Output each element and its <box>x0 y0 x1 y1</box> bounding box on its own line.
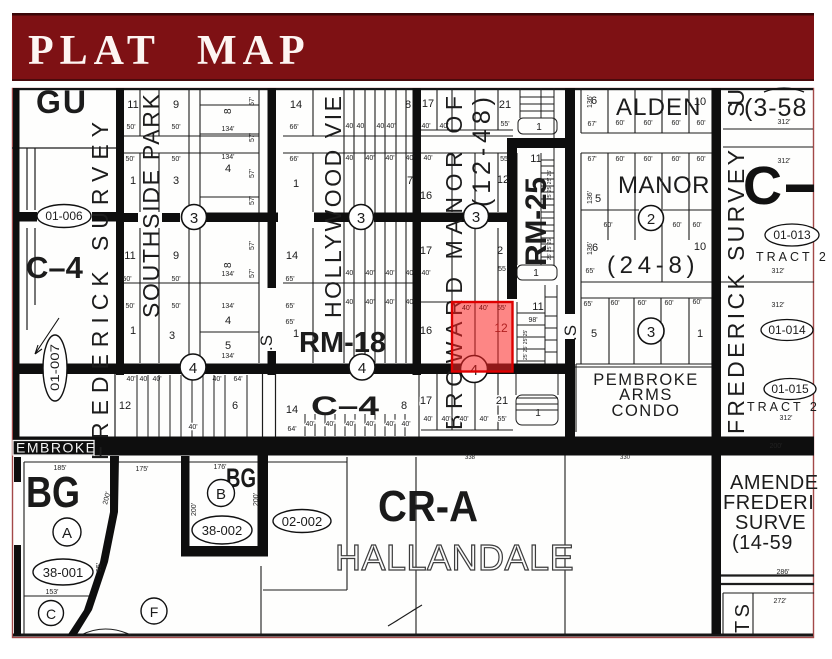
svg-text:9: 9 <box>173 250 179 262</box>
svg-text:60': 60' <box>664 300 673 307</box>
svg-text:8: 8 <box>223 262 234 268</box>
svg-text:6: 6 <box>232 400 238 412</box>
svg-text:BG: BG <box>26 468 80 517</box>
svg-text:55: 55 <box>500 156 508 163</box>
svg-text:57': 57' <box>249 133 256 142</box>
svg-text:50': 50' <box>171 276 180 283</box>
svg-text:65': 65' <box>585 268 594 275</box>
svg-text:(14-59: (14-59 <box>732 532 793 554</box>
svg-text:2: 2 <box>497 245 503 257</box>
svg-text:C–4: C–4 <box>26 250 84 285</box>
svg-text:1: 1 <box>533 268 539 279</box>
svg-text:60': 60' <box>672 222 681 229</box>
svg-text:312': 312' <box>777 158 790 165</box>
svg-text:CR-A: CR-A <box>378 482 478 531</box>
svg-text:25' 25' 25' 25': 25' 25' 25' 25' <box>547 170 553 200</box>
svg-text:01-013: 01-013 <box>773 228 811 242</box>
svg-text:55: 55 <box>498 266 506 273</box>
svg-text:4: 4 <box>225 163 231 175</box>
svg-text:312': 312' <box>771 268 784 275</box>
svg-text:200': 200' <box>769 443 782 450</box>
svg-text:8: 8 <box>401 400 407 412</box>
svg-text:60': 60' <box>692 299 701 306</box>
svg-text:40': 40' <box>405 270 414 277</box>
svg-text:11: 11 <box>124 250 135 262</box>
svg-text:40': 40' <box>421 123 430 130</box>
svg-text:60': 60' <box>696 120 705 127</box>
svg-text:HALLANDALE: HALLANDALE <box>335 537 574 578</box>
svg-text:1: 1 <box>293 328 299 340</box>
svg-text:40': 40' <box>385 270 394 277</box>
svg-text:50': 50' <box>125 303 134 310</box>
svg-text:50': 50' <box>171 124 180 131</box>
svg-text:17: 17 <box>422 98 434 110</box>
svg-text:134': 134' <box>221 303 234 310</box>
svg-text:175': 175' <box>135 466 148 473</box>
svg-text:65': 65' <box>285 303 294 310</box>
svg-text:TRACT 2: TRACT 2 <box>756 250 829 264</box>
svg-text:312': 312' <box>771 302 784 309</box>
svg-text:134': 134' <box>221 353 234 360</box>
svg-text:5: 5 <box>591 328 597 340</box>
svg-text:10: 10 <box>694 96 706 108</box>
svg-text:(12-48): (12-48) <box>468 97 496 207</box>
svg-text:16: 16 <box>420 325 432 337</box>
svg-text:8: 8 <box>405 99 411 111</box>
svg-text:7: 7 <box>407 175 413 187</box>
svg-text:40': 40' <box>441 416 450 423</box>
svg-text:40': 40' <box>305 421 314 428</box>
svg-text:40': 40' <box>376 123 385 130</box>
svg-text:40': 40' <box>345 123 354 130</box>
svg-text:312': 312' <box>779 415 792 422</box>
svg-text:136': 136' <box>587 95 594 108</box>
svg-text:.S: .S <box>257 335 276 351</box>
svg-text:57': 57' <box>249 196 256 205</box>
svg-text:60': 60' <box>696 156 705 163</box>
svg-text:38-001: 38-001 <box>43 565 83 580</box>
svg-text:67': 67' <box>587 121 596 128</box>
svg-text:40': 40' <box>365 299 374 306</box>
svg-text:40': 40' <box>423 416 432 423</box>
svg-text:200': 200' <box>253 493 260 506</box>
svg-text:8: 8 <box>223 108 234 114</box>
svg-text:PLAT: PLAT <box>28 28 161 74</box>
svg-text:1: 1 <box>536 122 542 133</box>
svg-text:176': 176' <box>213 464 226 471</box>
svg-text:3: 3 <box>169 330 175 342</box>
svg-text:338: 338 <box>465 455 476 461</box>
svg-text:02-002: 02-002 <box>282 514 322 529</box>
svg-text:40': 40' <box>385 155 394 162</box>
svg-text:57': 57' <box>249 241 256 250</box>
svg-text:60': 60' <box>671 120 680 127</box>
svg-text:40': 40' <box>188 424 197 431</box>
svg-text:60': 60' <box>692 222 701 229</box>
svg-text:(24-8): (24-8) <box>607 252 696 279</box>
svg-text:01-015: 01-015 <box>771 382 809 396</box>
svg-text:40': 40' <box>325 421 334 428</box>
svg-text:40': 40' <box>365 155 374 162</box>
svg-text:286': 286' <box>776 569 789 576</box>
svg-text:4: 4 <box>358 360 366 377</box>
svg-text:(3-58: (3-58 <box>744 94 807 122</box>
svg-text:60': 60' <box>610 300 619 307</box>
svg-text:2: 2 <box>647 211 655 228</box>
svg-text:134': 134' <box>221 126 234 133</box>
svg-text:330: 330 <box>620 455 631 461</box>
svg-text:65': 65' <box>285 319 294 326</box>
svg-text:11: 11 <box>532 301 543 313</box>
svg-text:9: 9 <box>173 99 179 111</box>
svg-text:MAP: MAP <box>197 28 311 74</box>
svg-text:TRACT 2: TRACT 2 <box>747 400 820 414</box>
svg-text:55': 55' <box>497 305 506 312</box>
svg-text:40': 40' <box>365 421 374 428</box>
svg-text:3: 3 <box>173 175 179 187</box>
svg-text:1: 1 <box>293 178 299 190</box>
svg-text:272': 272' <box>773 598 786 605</box>
svg-text:40': 40' <box>345 155 354 162</box>
svg-text:C–4: C–4 <box>311 391 379 421</box>
svg-text:A: A <box>62 525 72 542</box>
svg-text:1: 1 <box>130 175 136 187</box>
svg-text:25' 25' 25': 25' 25' 25' <box>547 238 553 260</box>
svg-text:16: 16 <box>420 190 432 202</box>
svg-text:50': 50' <box>171 303 180 310</box>
svg-text:40': 40' <box>152 376 161 383</box>
svg-text:66': 66' <box>289 124 298 131</box>
svg-text:312': 312' <box>777 119 790 126</box>
svg-text:136': 136' <box>587 242 594 255</box>
svg-text:12: 12 <box>494 321 508 335</box>
svg-text:3: 3 <box>357 210 365 227</box>
svg-text:17: 17 <box>420 395 432 407</box>
svg-text:HOLLYWOOD VIE: HOLLYWOOD VIE <box>320 96 346 318</box>
svg-text:40': 40' <box>405 299 414 306</box>
svg-text:4: 4 <box>225 315 231 327</box>
svg-text:5: 5 <box>225 340 231 352</box>
svg-text:1: 1 <box>697 328 703 340</box>
svg-text:153': 153' <box>45 589 58 596</box>
svg-text:98': 98' <box>528 317 537 324</box>
svg-text:3: 3 <box>190 210 198 227</box>
svg-text:01-007: 01-007 <box>50 344 62 391</box>
svg-text:12: 12 <box>119 400 131 412</box>
svg-text:40': 40' <box>356 123 365 130</box>
svg-text:14: 14 <box>290 99 302 111</box>
svg-text:50': 50' <box>125 156 134 163</box>
svg-text:65': 65' <box>285 276 294 283</box>
svg-text:66': 66' <box>289 156 298 163</box>
svg-text:C: C <box>46 606 56 622</box>
svg-text:1: 1 <box>535 408 541 419</box>
svg-text:40': 40' <box>139 376 148 383</box>
svg-text:SU: SU <box>723 89 749 117</box>
svg-text:38-002: 38-002 <box>202 523 242 538</box>
svg-text:21: 21 <box>496 395 508 407</box>
svg-text:64': 64' <box>287 426 296 433</box>
svg-text:60': 60' <box>615 120 624 127</box>
svg-text:14: 14 <box>286 250 298 262</box>
svg-text:95': 95' <box>96 563 103 572</box>
svg-text:40': 40' <box>385 421 394 428</box>
svg-text:EMBROKE: EMBROKE <box>16 440 97 456</box>
svg-text:40': 40' <box>345 299 354 306</box>
svg-text:10: 10 <box>694 241 706 253</box>
svg-text:40': 40' <box>479 305 488 312</box>
svg-text:AMENDE: AMENDE <box>730 472 819 494</box>
svg-text:40': 40' <box>212 376 221 383</box>
svg-text:40': 40' <box>401 421 410 428</box>
svg-text:40': 40' <box>386 123 395 130</box>
svg-text:01-006: 01-006 <box>45 209 83 223</box>
svg-text:60': 60' <box>637 300 646 307</box>
svg-text:11: 11 <box>530 153 541 165</box>
svg-text:65': 65' <box>583 301 592 308</box>
svg-text:5: 5 <box>595 193 601 205</box>
svg-text:67': 67' <box>587 156 596 163</box>
svg-text:134': 134' <box>221 154 234 161</box>
svg-text:25' 25' 25' 25': 25' 25' 25' 25' <box>523 330 529 360</box>
svg-text:F: F <box>150 604 159 620</box>
svg-text:64': 64' <box>233 376 242 383</box>
svg-text:57': 57' <box>249 97 256 106</box>
svg-text:57': 57' <box>249 169 256 178</box>
svg-text:50': 50' <box>126 124 135 131</box>
svg-text:50': 50' <box>171 156 180 163</box>
svg-text:185': 185' <box>53 465 66 472</box>
svg-text:57': 57' <box>249 269 256 278</box>
svg-text:14: 14 <box>286 404 298 416</box>
svg-text:40': 40' <box>345 270 354 277</box>
svg-text:SURVE: SURVE <box>735 512 806 534</box>
svg-text:SOUTHSIDE PARK: SOUTHSIDE PARK <box>138 93 164 318</box>
svg-text:12: 12 <box>497 174 509 186</box>
svg-text:136': 136' <box>587 191 594 204</box>
svg-text:.S: .S <box>561 325 580 341</box>
svg-text:40': 40' <box>126 376 135 383</box>
svg-text:40': 40' <box>385 299 394 306</box>
svg-text:40': 40' <box>439 123 448 130</box>
svg-text:3: 3 <box>647 324 655 341</box>
svg-text:B: B <box>216 486 226 503</box>
svg-text:40': 40' <box>479 416 488 423</box>
svg-text:21: 21 <box>499 99 511 111</box>
svg-text:RM-18: RM-18 <box>299 327 386 359</box>
svg-text:17: 17 <box>420 245 432 257</box>
svg-text:MANOR: MANOR <box>618 172 711 199</box>
svg-text:40': 40' <box>365 270 374 277</box>
svg-text:GU: GU <box>36 84 88 120</box>
svg-text:11: 11 <box>127 99 138 111</box>
svg-text:50': 50' <box>122 276 131 283</box>
svg-text:CONDO: CONDO <box>612 402 681 420</box>
svg-text:60': 60' <box>615 156 624 163</box>
svg-text:1: 1 <box>130 325 136 337</box>
svg-text:55': 55' <box>497 416 506 423</box>
svg-text:200': 200' <box>191 503 198 516</box>
svg-text:60': 60' <box>643 156 652 163</box>
svg-text:FREDERI: FREDERI <box>723 492 814 514</box>
svg-text:40': 40' <box>405 155 414 162</box>
svg-text:60': 60' <box>643 120 652 127</box>
svg-text:40': 40' <box>421 270 430 277</box>
svg-text:4: 4 <box>189 360 197 377</box>
svg-text:60': 60' <box>603 222 612 229</box>
svg-text:134': 134' <box>221 271 234 278</box>
svg-text:40': 40' <box>423 155 432 162</box>
svg-text:40': 40' <box>459 416 468 423</box>
svg-text:40': 40' <box>345 421 354 428</box>
svg-text:60': 60' <box>671 156 680 163</box>
svg-text:40': 40' <box>462 305 471 312</box>
svg-text:3: 3 <box>472 209 480 226</box>
svg-text:ALDEN: ALDEN <box>616 94 702 121</box>
svg-text:55': 55' <box>500 121 509 128</box>
svg-text:01-014: 01-014 <box>768 323 806 337</box>
